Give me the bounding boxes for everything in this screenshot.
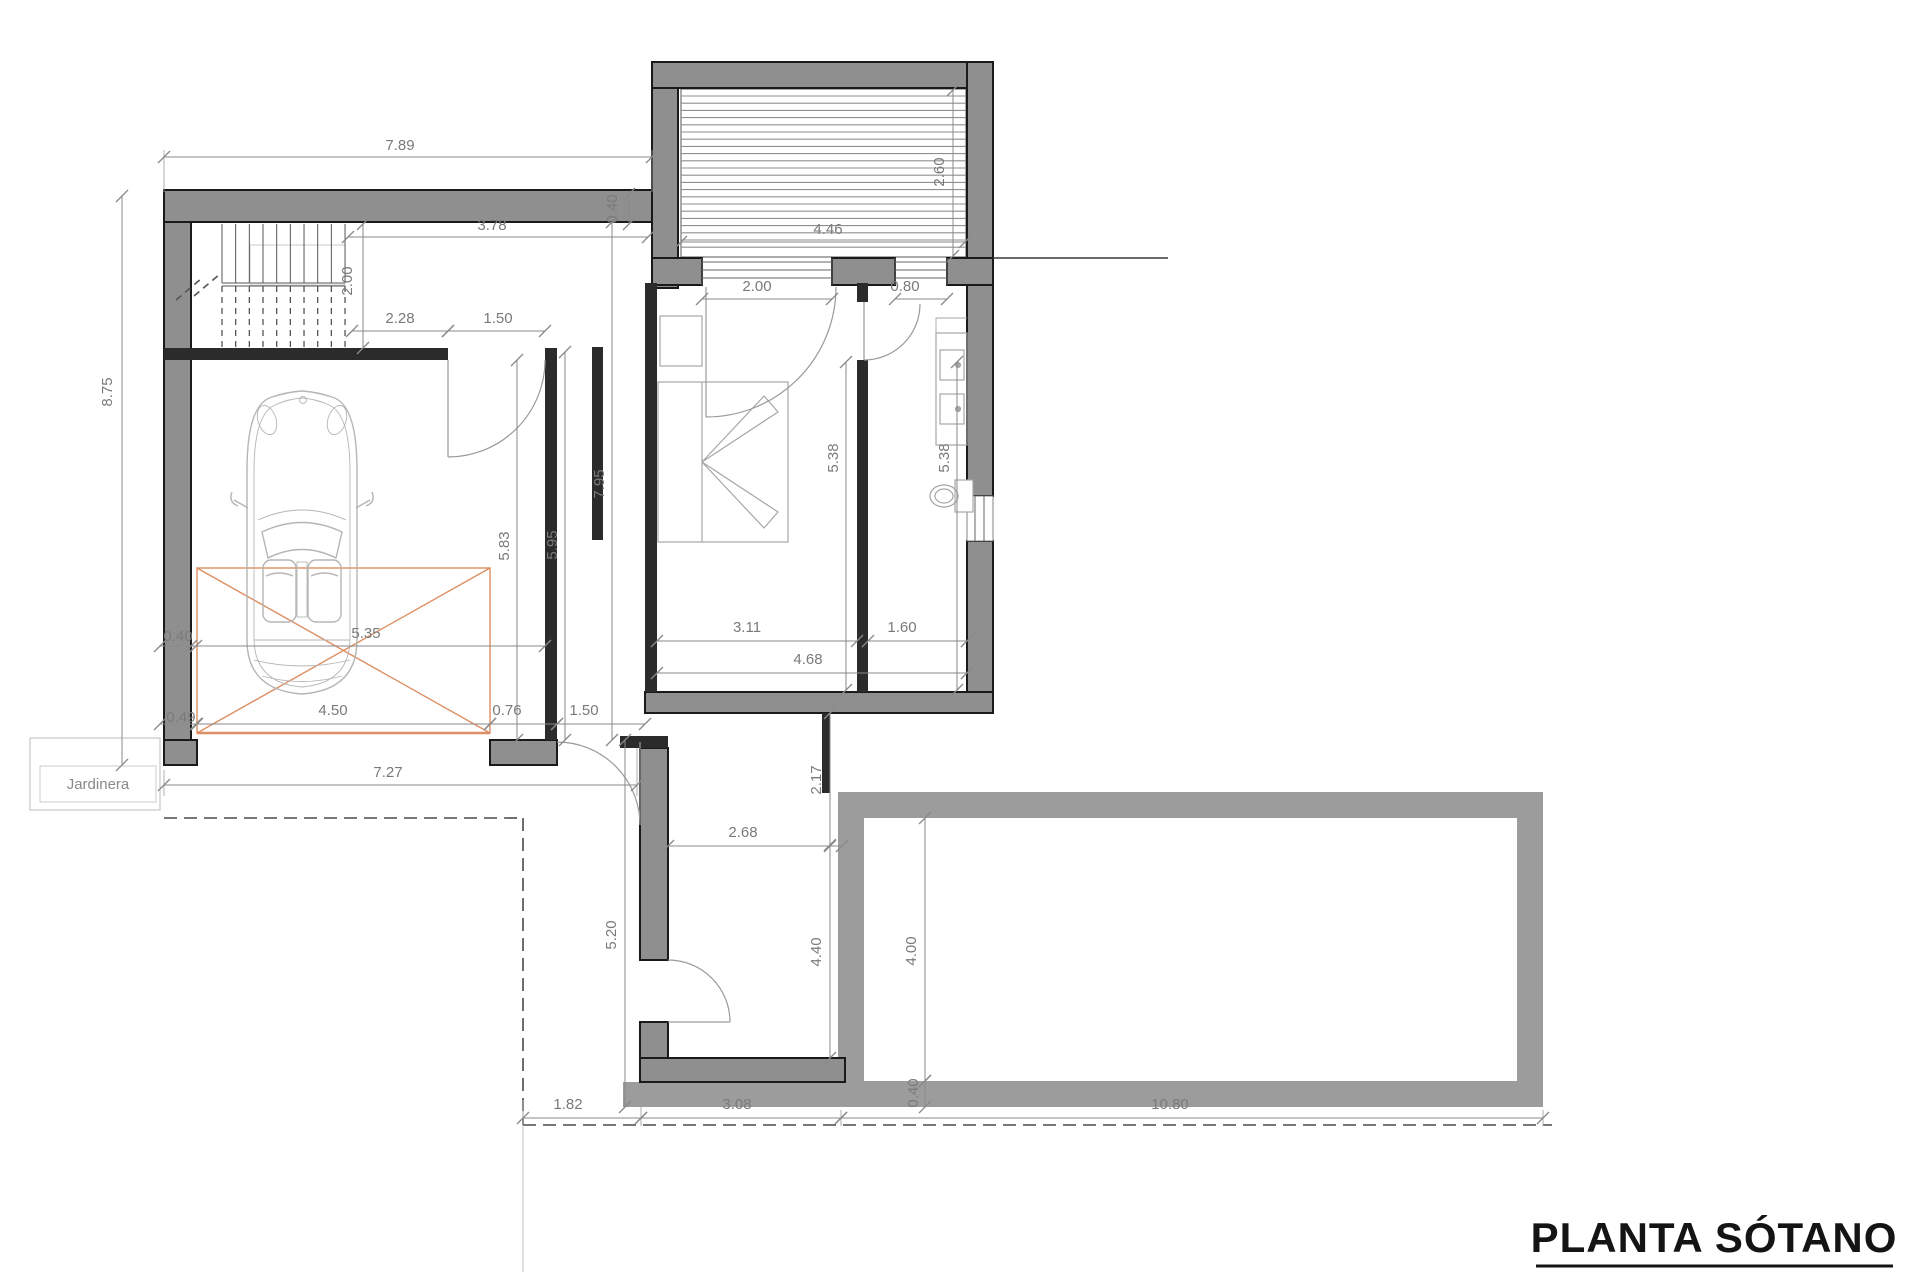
wall-window-seg-a: [652, 258, 702, 285]
dim-rooms-width: 4.68: [651, 651, 973, 679]
dim-label-pool-wall-thk: 0.40: [905, 1078, 922, 1107]
dim-label-patio-depth: 4.40: [808, 937, 825, 966]
dim-label-bath-window: 0.80: [890, 278, 919, 295]
dim-platform-diag: 5.35: [185, 625, 551, 652]
dim-label-garage-wall-length: 5.95: [544, 530, 561, 559]
car-hood-badge: [300, 397, 307, 404]
dim-label-bedroom-depth: 5.38: [825, 443, 842, 472]
car-seat-left: [263, 560, 296, 622]
dim-label-hall-opening: 1.50: [483, 310, 512, 327]
dim-bathroom-width: 1.60: [862, 619, 973, 647]
dim-label-bottom-a: 1.82: [553, 1096, 582, 1113]
wall-shaft-top: [652, 62, 993, 88]
wall-garage-bottom-right: [490, 740, 557, 765]
car-body-inner: [254, 398, 350, 687]
dim-stair-width: 2.00: [339, 218, 369, 354]
dim-platform-width: 4.50: [191, 702, 496, 730]
car-mirror-right: [356, 492, 373, 508]
dim-bedroom-depth: 5.38: [825, 356, 852, 696]
dim-label-bathroom-width: 1.60: [887, 619, 916, 636]
car-windshield: [262, 523, 342, 559]
stair-landing-outline: [250, 245, 345, 285]
dim-label-terrace-depth: 2.17: [808, 765, 825, 794]
dim-label-left-height: 8.75: [99, 377, 116, 406]
dim-label-garage-front: 7.27: [373, 764, 402, 781]
door-patio-room: [668, 960, 730, 1022]
wall-divider-stub: [857, 283, 868, 302]
vanity-counter-link: [936, 318, 967, 333]
jardinera: Jardinera: [30, 738, 160, 810]
bed-blanket-fold-bottom: [702, 462, 778, 528]
pool-basin: [864, 818, 1517, 1081]
car-seat-right-back: [311, 573, 338, 576]
dim-label-platform-width: 4.50: [318, 702, 347, 719]
dim-left-height: 8.75: [99, 190, 128, 771]
wall-stair-hall: [164, 348, 448, 360]
car-cowl: [258, 510, 346, 520]
dim-top-width: 7.89: [158, 137, 658, 163]
car-console: [297, 562, 307, 617]
plan-title: PLANTA SÓTANO: [1531, 1213, 1898, 1261]
door-bathroom: [864, 302, 920, 360]
car-seat-left-back: [266, 573, 293, 576]
car: [231, 391, 373, 694]
garage: [197, 391, 490, 733]
dim-patio-depth: 4.40: [808, 840, 836, 1064]
wall-left-outer: [164, 190, 191, 765]
bed-blanket-fold-top: [702, 396, 778, 462]
wall-garage-bottom-left: [164, 740, 197, 765]
dim-label-wall-thk-top: 0.40: [604, 194, 621, 223]
dim-label-corridor-length: 7.95: [591, 469, 608, 498]
bathroom: [930, 318, 973, 512]
dim-label-wall-thk-left-a: 0.40: [163, 628, 192, 645]
car-mirror-left: [231, 492, 248, 508]
dim-label-store-depth: 5.20: [603, 920, 620, 949]
dim-label-rooms-width: 4.68: [793, 651, 822, 668]
dim-label-patio-width: 2.68: [728, 824, 757, 841]
dim-label-garage-depth: 5.83: [496, 531, 513, 560]
wall-patio-bottom: [640, 1058, 845, 1082]
nightstand: [660, 316, 702, 366]
wall-patio-left-a: [640, 748, 668, 960]
wall-window-seg-b: [832, 258, 895, 285]
door-corridor-to-patio: [557, 742, 640, 825]
dim-label-bottom-c: 10.80: [1151, 1096, 1189, 1113]
dim-corridor-door: 1.50: [551, 702, 651, 730]
dim-bedroom-window: 2.00: [696, 278, 838, 305]
dim-hall-opening: 1.50: [442, 310, 551, 337]
dim-patio-width: 2.68: [662, 824, 848, 852]
floor-plan-svg: Jardinera 7.893.782.002.281.504.462.600.…: [0, 0, 1920, 1280]
jardinera-label: Jardinera: [67, 776, 130, 793]
dim-label-top-width: 7.89: [385, 137, 414, 154]
wall-top-outer: [164, 190, 660, 222]
dim-label-corridor-door: 1.50: [569, 702, 598, 719]
door-hall-to-garage: [448, 360, 545, 457]
floor-plan-page: Jardinera 7.893.782.002.281.504.462.600.…: [0, 0, 1920, 1280]
dim-corridor-length: 7.95: [591, 216, 618, 746]
dim-label-shaft-width: 4.46: [813, 221, 842, 238]
bed: [658, 382, 788, 542]
dim-label-platform-diag: 5.35: [351, 625, 380, 642]
title-block: PLANTA SÓTANO: [1531, 1213, 1898, 1266]
dim-label-bedroom-width: 3.11: [733, 619, 761, 636]
dim-label-hall-a: 2.28: [385, 310, 414, 327]
dim-label-pool-depth: 4.00: [903, 936, 920, 965]
staircase: [176, 224, 345, 348]
dim-bath-window: 0.80: [889, 278, 953, 305]
wall-bedroom-bottom: [645, 692, 993, 713]
wall-right-lower: [967, 541, 993, 713]
dim-label-bedroom-window: 2.00: [742, 278, 771, 295]
dim-label-pillar-width: 0.76: [492, 702, 521, 719]
dim-label-bathroom-depth: 5.38: [936, 443, 953, 472]
toilet-bowl: [930, 485, 958, 507]
wall-closet: [592, 347, 603, 540]
toilet-bowl-inner: [935, 489, 953, 503]
bedroom: [658, 316, 788, 542]
car-bumper-line: [262, 676, 342, 682]
dim-garage-front: 7.27: [158, 764, 643, 791]
dim-bedroom-width: 3.11: [651, 619, 863, 647]
dim-garage-depth: 5.83: [496, 354, 523, 746]
wall-window-seg-c: [947, 258, 993, 285]
door-bedroom: [706, 287, 836, 417]
dim-label-shaft-depth: 2.60: [931, 157, 948, 186]
sink-bottom-faucet: [956, 407, 961, 412]
dim-label-wall-thk-left-b: 0.49: [166, 709, 195, 726]
car-trunk-line: [254, 660, 350, 666]
dim-label-bottom-b: 3.08: [722, 1096, 751, 1113]
dim-store-depth: 5.20: [603, 734, 631, 1113]
dim-label-stair-to-shaft: 3.78: [477, 217, 506, 234]
dim-hall-a: 2.28: [346, 310, 454, 337]
windows: [702, 258, 993, 541]
wall-bedroom-left: [645, 283, 657, 692]
wall-patio-left-b: [640, 1022, 668, 1058]
dim-label-stair-width: 2.00: [339, 266, 356, 295]
car-seat-right: [308, 560, 341, 622]
wall-shaft-left: [652, 62, 678, 288]
